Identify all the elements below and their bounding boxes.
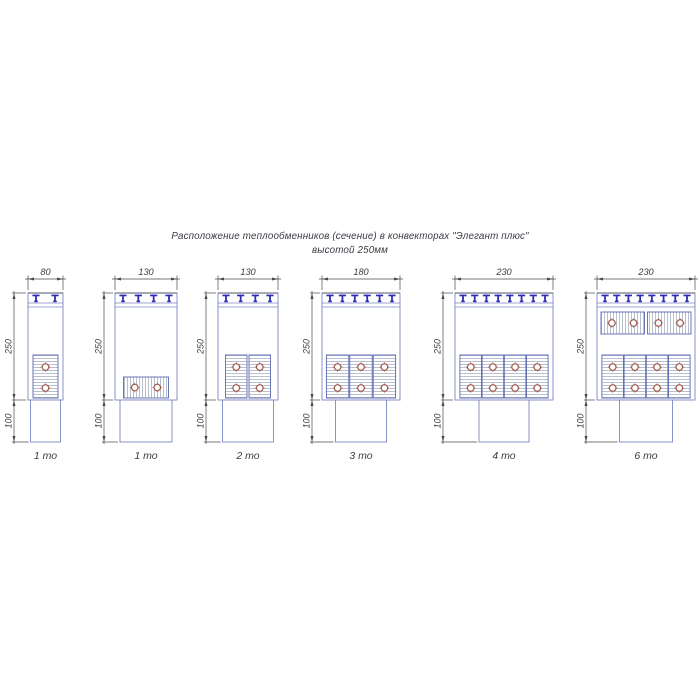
plinth: [223, 400, 274, 442]
heat-exchanger-group: [602, 355, 690, 398]
width-value-label: 180: [353, 267, 369, 277]
unit-count-label: 1 то: [134, 450, 157, 462]
plinth-height-label: 100: [4, 414, 14, 429]
unit-count-label: 4 то: [492, 450, 515, 462]
heat-exchanger-group: [33, 355, 58, 398]
width-dimension: 130: [215, 267, 281, 290]
width-value-label: 130: [138, 267, 154, 277]
tube-circle: [42, 385, 49, 392]
tube-circle: [358, 364, 365, 371]
heat-exchanger-group: [326, 355, 395, 398]
plinth: [336, 400, 387, 442]
body-height-label: 250: [433, 339, 443, 355]
convector-figure-2: 1302501001 то: [94, 267, 181, 462]
tube-circle: [609, 320, 616, 327]
tube-circle: [655, 320, 662, 327]
tube-circle: [233, 385, 240, 392]
width-value-label: 230: [495, 267, 512, 277]
body-height-label: 250: [94, 339, 104, 355]
plinth: [620, 400, 673, 442]
body-height-label: 250: [196, 339, 206, 355]
convector-figure-4: 1802501003 то: [302, 267, 404, 462]
tube-circle: [609, 364, 616, 371]
tube-circle: [154, 384, 161, 391]
tube-circle: [534, 364, 541, 371]
tube-circle: [131, 384, 138, 391]
height-dimension: 250100: [196, 291, 221, 444]
convector-sections-drawing: 802501001 то1302501001 то1302501002 то18…: [0, 0, 700, 700]
unit-count-label: 2 то: [235, 450, 259, 462]
heat-exchanger-group: [460, 355, 548, 398]
body-height-label: 250: [302, 339, 312, 355]
tube-circle: [677, 320, 684, 327]
plinth-height-label: 100: [196, 414, 206, 429]
tube-circle: [609, 385, 616, 392]
tube-circle: [256, 364, 263, 371]
width-value-label: 80: [40, 267, 51, 277]
width-dimension: 80: [25, 267, 66, 290]
plinth: [479, 400, 529, 442]
tube-circle: [381, 385, 388, 392]
tube-circle: [654, 364, 661, 371]
tube-circle: [630, 320, 637, 327]
tube-circle: [632, 385, 639, 392]
tube-circle: [381, 364, 388, 371]
tube-circle: [256, 385, 263, 392]
plinth-height-label: 100: [433, 414, 443, 429]
plinth-height-label: 100: [94, 414, 104, 429]
tube-circle: [42, 364, 49, 371]
tube-circle: [358, 385, 365, 392]
tube-circle: [467, 385, 474, 392]
tube-circle: [334, 385, 341, 392]
tube-circle: [490, 364, 497, 371]
body-height-label: 250: [576, 339, 586, 355]
tube-circle: [233, 364, 240, 371]
tube-circle: [654, 385, 661, 392]
plinth-height-label: 100: [576, 414, 586, 429]
convector-figure-5: 2302501004 то: [433, 267, 557, 462]
width-value-label: 230: [637, 267, 654, 277]
width-dimension: 180: [319, 267, 403, 290]
plinth: [120, 400, 172, 442]
tube-circle: [676, 364, 683, 371]
unit-count-label: 6 то: [634, 450, 657, 462]
tube-circle: [467, 364, 474, 371]
heat-exchanger-group: [124, 377, 169, 398]
tube-circle: [512, 364, 519, 371]
tube-circle: [676, 385, 683, 392]
convector-figure-1: 802501001 то: [4, 267, 67, 462]
tube-circle: [632, 364, 639, 371]
convector-figure-3: 1302501002 то: [196, 267, 282, 462]
width-dimension: 230: [452, 267, 556, 290]
tube-circle: [512, 385, 519, 392]
tube-circle: [534, 385, 541, 392]
width-dimension: 230: [594, 267, 698, 290]
plinth-height-label: 100: [302, 414, 312, 429]
plinth: [31, 400, 61, 442]
width-dimension: 130: [112, 267, 180, 290]
width-value-label: 130: [240, 267, 256, 277]
unit-count-label: 1 то: [34, 450, 57, 462]
height-dimension: 250100: [94, 291, 119, 444]
drawing-canvas: Расположение теплообменников (сечение) в…: [0, 0, 700, 700]
tube-circle: [334, 364, 341, 371]
convector-figure-6: 2302501006 то: [576, 267, 699, 462]
height-dimension: 250100: [4, 291, 29, 444]
body-height-label: 250: [4, 339, 14, 355]
unit-count-label: 3 то: [349, 450, 372, 462]
tube-circle: [490, 385, 497, 392]
